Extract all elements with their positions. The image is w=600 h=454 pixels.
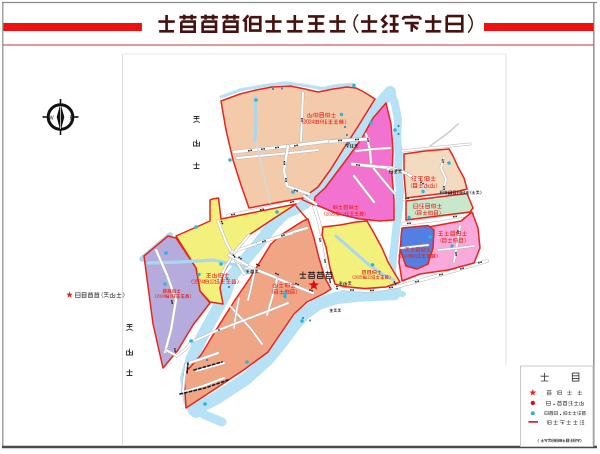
svg-text:2024: 2024 <box>304 120 315 126</box>
svg-text:6: 6 <box>320 120 323 126</box>
svg-text:2024: 2024 <box>400 254 410 260</box>
svg-text:12: 12 <box>340 211 345 217</box>
svg-text:12: 12 <box>209 280 214 286</box>
svg-text:2024: 2024 <box>193 280 204 286</box>
svg-text:2025: 2025 <box>354 275 363 280</box>
svg-text:12: 12 <box>367 275 372 280</box>
svg-text:W: W <box>49 116 55 122</box>
svg-text:2024: 2024 <box>156 294 165 299</box>
svg-text:E: E <box>70 116 74 122</box>
svg-text:2025: 2025 <box>326 211 336 217</box>
